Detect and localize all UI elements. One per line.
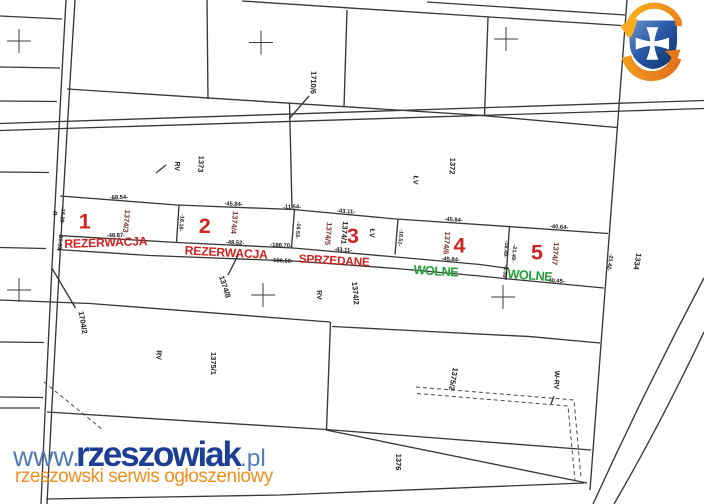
svg-text:-186.70-: -186.70- [270, 242, 292, 249]
svg-text:WOLNE: WOLNE [413, 262, 460, 280]
svg-text:3: 3 [347, 224, 359, 248]
svg-text:ŁV: ŁV [411, 175, 418, 185]
svg-text:1: 1 [79, 209, 91, 233]
svg-text:rzeszowski serwis ogłoszeniowy: rzeszowski serwis ogłoszeniowy [15, 466, 274, 487]
svg-text:1375/1: 1375/1 [209, 352, 218, 375]
svg-text:-43.11-: -43.11- [337, 208, 355, 215]
svg-text:RV: RV [315, 290, 322, 300]
svg-text:RV: RV [173, 161, 181, 171]
svg-text:-11.54-: -11.54- [283, 205, 301, 211]
svg-text:-45.84-: -45.84- [224, 201, 243, 208]
svg-text:-45.84-: -45.84- [444, 217, 463, 224]
svg-text:WOLNE: WOLNE [507, 266, 554, 284]
svg-text:-40.64-: -40.64- [550, 224, 569, 231]
svg-text:4: 4 [454, 234, 466, 258]
svg-text:1710/6: 1710/6 [309, 71, 319, 94]
svg-text:RV: RV [155, 350, 162, 360]
svg-text:1372: 1372 [448, 158, 458, 175]
svg-text:-186.50-: -186.50- [271, 258, 293, 265]
svg-text:1376: 1376 [394, 454, 404, 471]
svg-text:REZERWACJA: REZERWACJA [64, 234, 148, 251]
svg-text:2: 2 [199, 214, 211, 238]
svg-text:1373: 1373 [196, 156, 206, 173]
svg-text:-68.54-: -68.54- [110, 195, 129, 202]
svg-text:ŁV: ŁV [368, 228, 376, 238]
svg-text:W-RV: W-RV [552, 371, 560, 390]
svg-text:5: 5 [531, 241, 543, 265]
